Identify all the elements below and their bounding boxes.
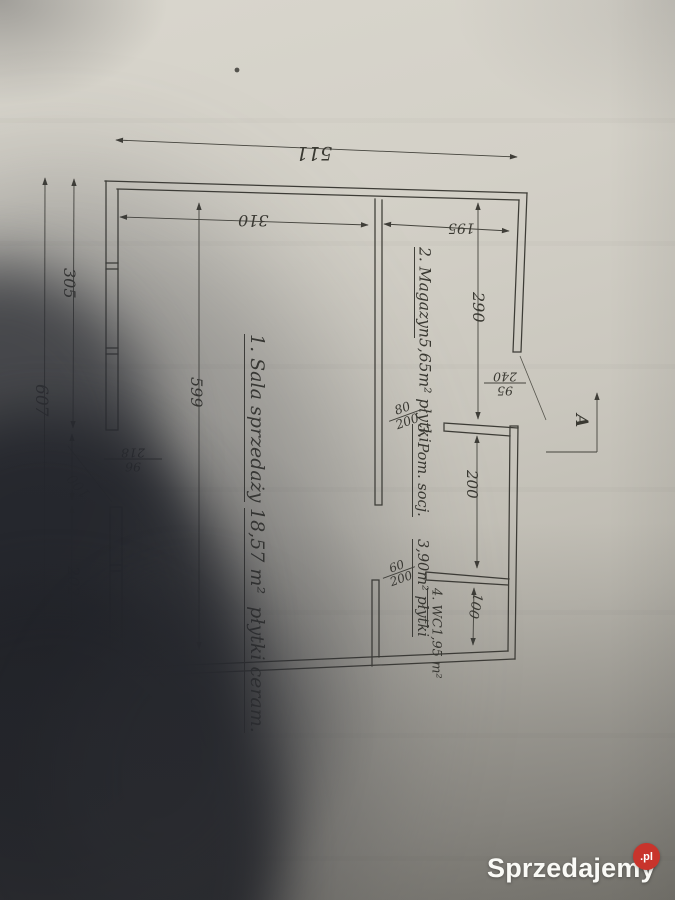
dim-305-line <box>73 179 74 428</box>
dim-310-label: 310 <box>238 211 269 228</box>
watermark-brand: Sprzedajemy <box>487 853 656 884</box>
dim-599-label: 599 <box>187 377 204 408</box>
wall-left-lower <box>110 507 122 677</box>
ink-dot <box>235 68 240 73</box>
dim-202-label: 202 <box>64 566 81 597</box>
dim-200-label: 200 <box>463 470 479 499</box>
wall-pom-top <box>444 423 518 436</box>
room-wc-area: 1,95 m² <box>427 628 443 679</box>
left-door-size-label: 96 218 <box>104 446 162 473</box>
wall-right-lower <box>508 426 518 659</box>
left-door-height: 218 <box>121 446 145 461</box>
dim-511-label: 511 <box>296 142 332 162</box>
section-a-letter: A <box>571 414 589 427</box>
wall-bottom <box>110 651 515 677</box>
room-sala-title: 1. Sala sprzedaży <box>244 334 266 502</box>
room-label-pom-socj: 3. Pom. socj. 3,90m² płytki <box>412 424 429 584</box>
window-dividers-upper <box>106 263 118 354</box>
room-label-wc: 4. WC 1,95 m² <box>427 588 443 654</box>
dimension-lines <box>44 140 517 682</box>
room-sala-area: 18,57 m² płytki ceram. <box>244 508 266 733</box>
room-magazyn-title: 2. Magazyn <box>414 247 432 338</box>
dim-195-label: 195 <box>448 220 475 235</box>
wall-top-outer <box>105 181 527 193</box>
room-pom-title: 3. Pom. socj. <box>412 424 429 517</box>
photo-of-floorplan: 511 310 195 290 599 200 100 305 100 202 … <box>0 0 675 900</box>
dim-607-line <box>44 178 45 682</box>
watermark: Sprzedajemy .pl <box>487 845 667 889</box>
dim-195-line <box>384 224 509 231</box>
room-label-sala: 1. Sala sprzedaży 18,57 m² płytki ceram. <box>244 334 266 666</box>
entry-door-size-label: 95 240 <box>484 370 526 397</box>
dim-290-label: 290 <box>469 292 486 323</box>
room-wc-title: 4. WC <box>427 588 443 628</box>
dim-607-label: 607 <box>31 384 49 416</box>
wall-right-upper <box>513 193 527 352</box>
wall-wc <box>426 572 509 585</box>
entry-door-width: 95 <box>497 384 513 399</box>
watermark-pl-badge: .pl <box>633 843 660 870</box>
room-label-magazyn: 2. Magazyn 5,65m² płytki <box>414 247 432 387</box>
left-door-width: 96 <box>125 460 141 475</box>
dim-305-label: 305 <box>60 268 77 299</box>
entry-door-height: 240 <box>493 370 517 385</box>
watermark-tld: .pl <box>640 851 653 863</box>
window-divider-lower <box>110 565 122 571</box>
wall-left-upper <box>106 181 118 430</box>
floorplan-drawing <box>0 0 675 900</box>
wall-partition-upper <box>375 199 382 505</box>
wall-partition-lower <box>372 580 379 666</box>
